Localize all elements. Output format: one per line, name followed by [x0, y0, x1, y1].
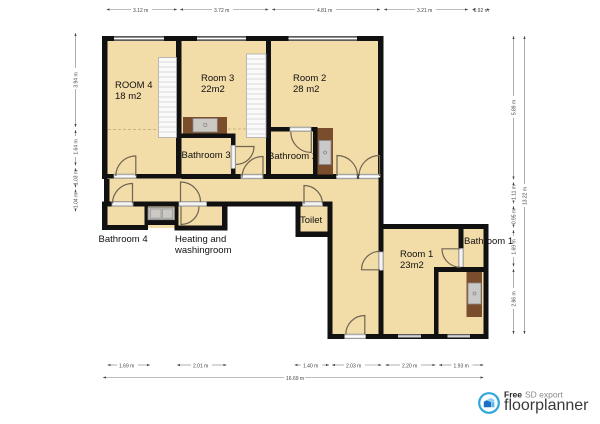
- svg-text:Bathroom 3: Bathroom 3: [182, 150, 231, 161]
- svg-text:Bathroom 1: Bathroom 1: [464, 236, 513, 247]
- svg-text:22m2: 22m2: [201, 84, 225, 95]
- svg-text:Room 1: Room 1: [400, 249, 433, 260]
- svg-text:3.21 m: 3.21 m: [417, 8, 432, 14]
- svg-text:16.69 m: 16.69 m: [286, 376, 304, 382]
- svg-text:2.86 m: 2.86 m: [512, 291, 518, 306]
- svg-text:4.81 m: 4.81 m: [317, 8, 332, 14]
- svg-text:3.12 m: 3.12 m: [133, 8, 148, 14]
- svg-text:floorplanner: floorplanner: [504, 397, 589, 414]
- svg-text:1.40 m: 1.40 m: [303, 363, 318, 369]
- svg-text:0.95 m: 0.95 m: [512, 209, 518, 224]
- svg-text:2.03 m: 2.03 m: [346, 363, 361, 369]
- svg-text:1.69 m: 1.69 m: [512, 239, 518, 254]
- svg-text:1.93 m: 1.93 m: [454, 363, 469, 369]
- svg-text:2.01 m: 2.01 m: [193, 363, 208, 369]
- svg-text:18 m2: 18 m2: [115, 91, 141, 102]
- svg-text:Room 2: Room 2: [293, 73, 326, 84]
- svg-text:2.20 m: 2.20 m: [402, 363, 417, 369]
- svg-text:23m2: 23m2: [400, 260, 424, 271]
- svg-text:3.94 m: 3.94 m: [74, 72, 80, 87]
- svg-text:Bathroom 4: Bathroom 4: [99, 234, 148, 245]
- svg-text:13.22 m: 13.22 m: [523, 187, 529, 205]
- svg-text:5.89 m: 5.89 m: [512, 100, 518, 115]
- svg-text:ROOM 4: ROOM 4: [115, 80, 152, 91]
- svg-text:Toilet: Toilet: [300, 215, 323, 226]
- svg-text:1.11 m: 1.11 m: [512, 185, 518, 200]
- svg-text:1.64 m: 1.64 m: [74, 139, 80, 154]
- svg-text:washingroom: washingroom: [174, 245, 232, 256]
- svg-text:1.04 m: 1.04 m: [74, 193, 80, 208]
- svg-text:1.03 m: 1.03 m: [74, 170, 80, 185]
- svg-text:3.72 m: 3.72 m: [214, 8, 229, 14]
- svg-text:28 m2: 28 m2: [293, 84, 319, 95]
- svg-text:Bathroom 2: Bathroom 2: [268, 151, 317, 162]
- svg-text:0.92 m: 0.92 m: [474, 8, 489, 14]
- svg-text:1.69 m: 1.69 m: [119, 363, 134, 369]
- svg-text:Heating and: Heating and: [175, 234, 226, 245]
- svg-text:Room 3: Room 3: [201, 73, 234, 84]
